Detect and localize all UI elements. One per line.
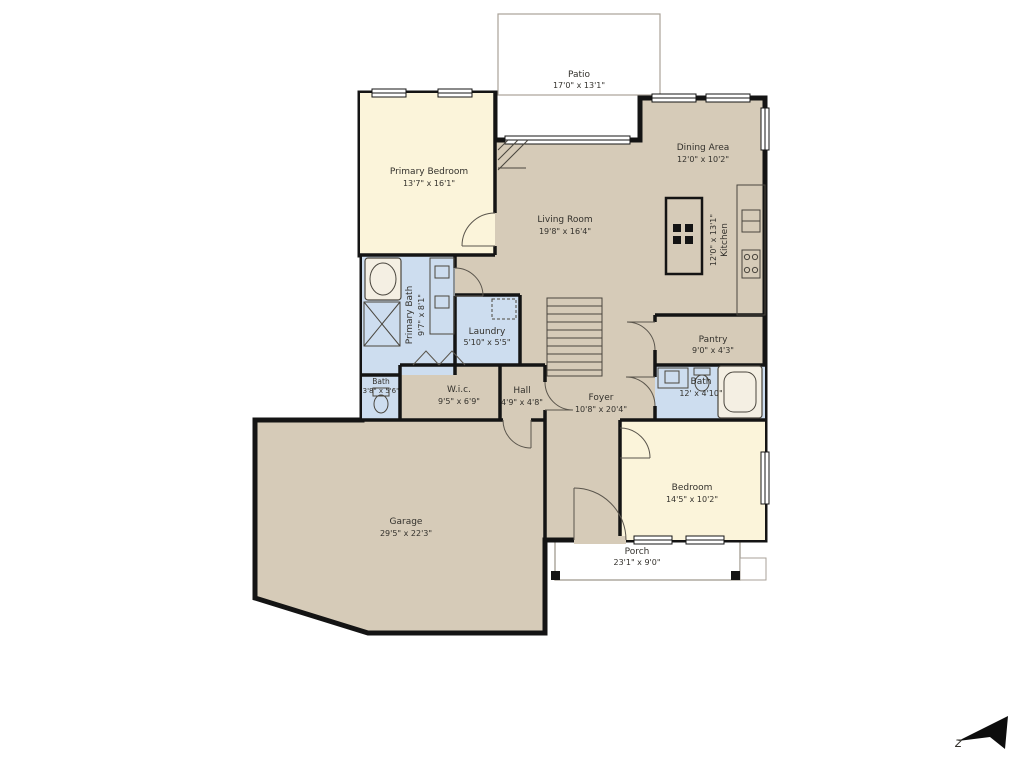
room-label: Garage <box>390 517 423 527</box>
room-label: W.i.c. <box>447 385 471 395</box>
room-dims: 4'9" x 4'8" <box>501 398 543 407</box>
porch-step <box>740 558 766 580</box>
room-label: Foyer <box>589 393 614 403</box>
room-label: Porch <box>625 547 650 557</box>
room-dims: 13'7" x 16'1" <box>403 179 455 188</box>
room-label: Laundry <box>469 327 506 337</box>
staircase <box>547 298 602 376</box>
room-label: Dining Area <box>677 143 730 153</box>
floor-plan-canvas: Patio 17'0" x 13'1" Porch 23'1" x 9'0" <box>0 0 1024 768</box>
patio-door <box>505 136 630 144</box>
room-label: Bath <box>372 377 390 386</box>
room-label: Living Room <box>537 215 592 225</box>
window <box>438 89 472 97</box>
room-dims: 5'10" x 5'5" <box>463 338 510 347</box>
room-dims: 9'5" x 6'9" <box>438 397 480 406</box>
porch-post <box>551 571 560 580</box>
window <box>686 536 724 544</box>
room-porch: Porch 23'1" x 9'0" <box>551 540 766 580</box>
room-label: Bath <box>691 377 712 387</box>
room-label: Bedroom <box>672 483 713 493</box>
room-label: Pantry <box>699 335 728 345</box>
bathtub-icon <box>365 258 401 300</box>
room-dims: 9'0" x 4'3" <box>692 346 734 355</box>
bathtub-icon <box>718 366 762 418</box>
floor-plan-page: Patio 17'0" x 13'1" Porch 23'1" x 9'0" <box>0 0 1024 768</box>
room-dims: 10'8" x 20'4" <box>575 405 627 414</box>
window <box>706 94 750 102</box>
room-patio: Patio 17'0" x 13'1" <box>498 14 660 95</box>
window <box>372 89 406 97</box>
room-dims: 17'0" x 13'1" <box>553 81 605 90</box>
room-label: Kitchen <box>720 223 730 257</box>
room-label: Primary Bath <box>405 286 415 345</box>
room-dims: 23'1" x 9'0" <box>613 558 660 567</box>
kitchen-island <box>666 198 702 274</box>
room-dims: 12'0" x 13'1" <box>709 214 718 266</box>
front-door-opening <box>574 536 626 544</box>
north-arrow-icon: z <box>954 716 1008 751</box>
room-dims: 3'8" x 5'6" <box>363 387 400 395</box>
room-dims: 29'5" x 22'3" <box>380 529 432 538</box>
window <box>761 108 769 150</box>
north-arrow-label: z <box>954 736 963 751</box>
room-dims: 12' x 4'10" <box>679 389 722 398</box>
porch-post <box>731 571 740 580</box>
room-dims: 19'8" x 16'4" <box>539 227 591 236</box>
room-dims: 9'7" x 8'1" <box>417 294 426 336</box>
room-label: Primary Bedroom <box>390 167 468 177</box>
window <box>652 94 696 102</box>
room-dims: 12'0" x 10'2" <box>677 155 729 164</box>
window <box>761 452 769 504</box>
room-label: Hall <box>513 386 530 396</box>
room-dims: 14'5" x 10'2" <box>666 495 718 504</box>
window <box>634 536 672 544</box>
room-label: Patio <box>568 70 591 80</box>
